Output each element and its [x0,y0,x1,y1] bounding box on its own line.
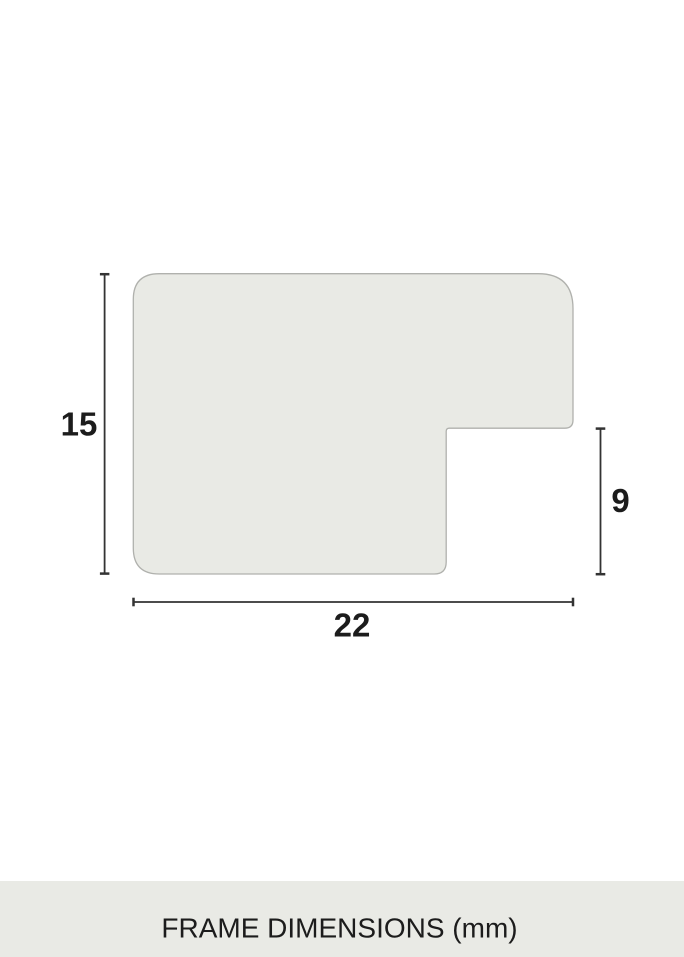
svg-text:22: 22 [334,607,371,644]
svg-text:9: 9 [611,482,629,519]
svg-text:FRAME DIMENSIONS (mm): FRAME DIMENSIONS (mm) [161,913,517,944]
svg-text:15: 15 [61,405,98,442]
